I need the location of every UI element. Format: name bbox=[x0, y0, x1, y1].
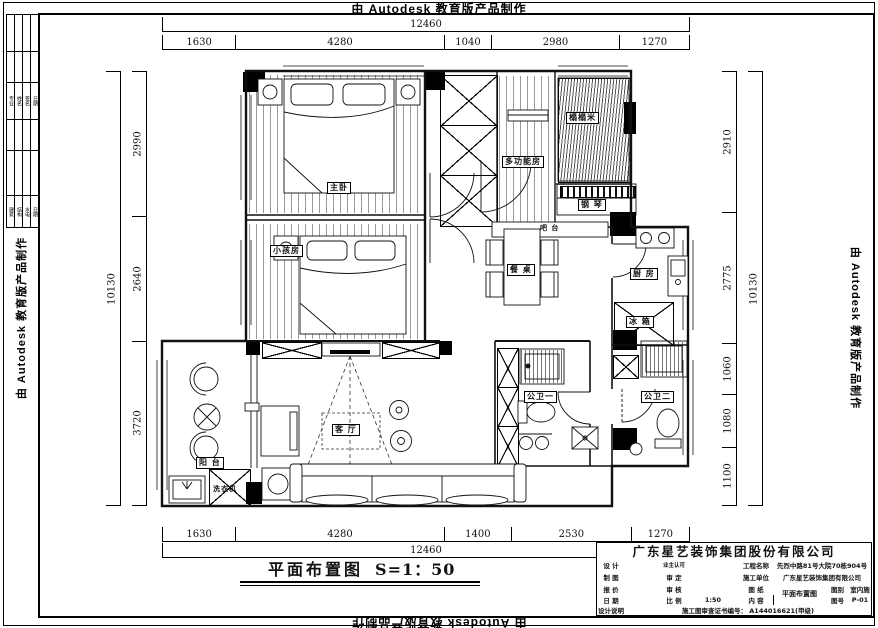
room-label-piano: 钢 琴 bbox=[578, 199, 606, 211]
title-block: 广东星艺装饰集团股份有限公司 设 计 业主认可 工程名称 先烈中路81号大院70… bbox=[596, 542, 872, 616]
tb-blank bbox=[625, 558, 662, 572]
room-label-fridge: 冰 箱 bbox=[626, 316, 654, 328]
room-label-master: 主卧 bbox=[327, 182, 351, 194]
room-label-living: 客 厅 bbox=[332, 424, 360, 436]
room-label-kitchen: 厨 房 bbox=[630, 268, 658, 280]
tb-project-name: 先烈中路81号大院70栋904号 bbox=[773, 558, 871, 572]
room-label-balcony: 阳 台 bbox=[196, 457, 224, 469]
room-label-bar: 吧 台 bbox=[538, 224, 561, 233]
cad-drawing-page: 由 Autodesk 教育版产品制作 由 Autodesk 教育版产品制作 由 … bbox=[0, 0, 878, 628]
tb-label: 设 计 bbox=[597, 558, 626, 572]
floorplan-linework bbox=[0, 0, 878, 628]
room-label-bath2: 公卫二 bbox=[641, 391, 674, 403]
room-label-bath1: 公卫一 bbox=[524, 391, 557, 403]
tb-label: 设计说明 bbox=[597, 605, 626, 615]
room-label-multi: 多功能房 bbox=[502, 156, 544, 168]
room-label-washer: 洗衣机 bbox=[211, 485, 239, 494]
room-label-kids: 小孩房 bbox=[270, 245, 303, 257]
room-label-dining: 餐 桌 bbox=[507, 264, 535, 276]
tb-drawing-content: 平面布置图 bbox=[773, 583, 827, 606]
company-name: 广东星艺装饰集团股份有限公司 bbox=[597, 543, 871, 559]
tb-blank bbox=[687, 558, 740, 572]
tb-label: 工程名称 bbox=[739, 558, 774, 572]
tb-certificate: 施工图审查证书编号： A144016621(甲级) bbox=[625, 605, 871, 615]
room-label-tatami: 榻榻米 bbox=[566, 112, 599, 124]
tb-label: 业主认可 bbox=[661, 558, 688, 572]
